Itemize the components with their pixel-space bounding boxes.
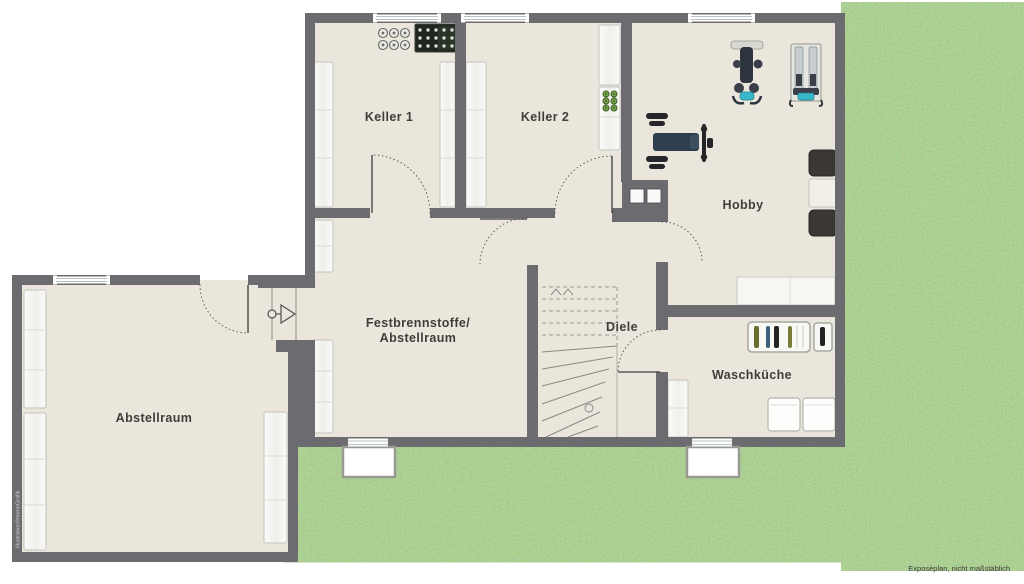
- disclaimer-caption: Exposéplan, nicht maßstäblich: [908, 564, 1010, 573]
- floor-passage: [258, 288, 315, 340]
- room-label-abstellraum: Abstellraum: [116, 411, 193, 425]
- strength-machine-icon: [790, 44, 822, 106]
- window: [461, 14, 529, 23]
- washing-machine-icon: [768, 398, 800, 431]
- chair-icon: [809, 210, 837, 236]
- window: [53, 276, 110, 285]
- sideboard-icon: [737, 277, 835, 305]
- room-label-festbrennstoffe-2: Abstellraum: [380, 331, 457, 345]
- drying-rack-icon: [748, 322, 832, 352]
- illustrator-watermark: Illustration©ImmoGrafik: [15, 490, 22, 548]
- room-label-waschkueche: Waschküche: [712, 368, 792, 382]
- window: [373, 14, 441, 23]
- room-label-keller1: Keller 1: [365, 110, 413, 124]
- shelf: [264, 412, 287, 543]
- light-well: [343, 439, 395, 478]
- light-well: [687, 439, 739, 478]
- room-label-keller2: Keller 2: [521, 110, 569, 124]
- shelf: [599, 25, 620, 150]
- shelf: [440, 62, 455, 207]
- shelf: [313, 340, 333, 433]
- room-label-diele: Diele: [606, 320, 638, 334]
- window: [688, 14, 755, 23]
- table-icon: [809, 179, 839, 207]
- shelf: [24, 290, 46, 408]
- room-label-hobby: Hobby: [723, 198, 764, 212]
- washing-machine-icon: [803, 398, 835, 431]
- shelf: [313, 220, 333, 272]
- chair-icon: [809, 150, 837, 176]
- floor-plan-canvas: Keller 1 Keller 2 Hobby Festbrennstoffe/…: [0, 0, 1024, 584]
- shelf: [466, 62, 486, 207]
- room-label-festbrennstoffe-1: Festbrennstoffe/: [366, 316, 470, 330]
- lawn-bottom: [298, 447, 1024, 560]
- shelf: [24, 413, 46, 550]
- shelf: [668, 380, 688, 437]
- floor-plan-page: Keller 1 Keller 2 Hobby Festbrennstoffe/…: [0, 0, 1024, 584]
- shelf: [313, 62, 333, 207]
